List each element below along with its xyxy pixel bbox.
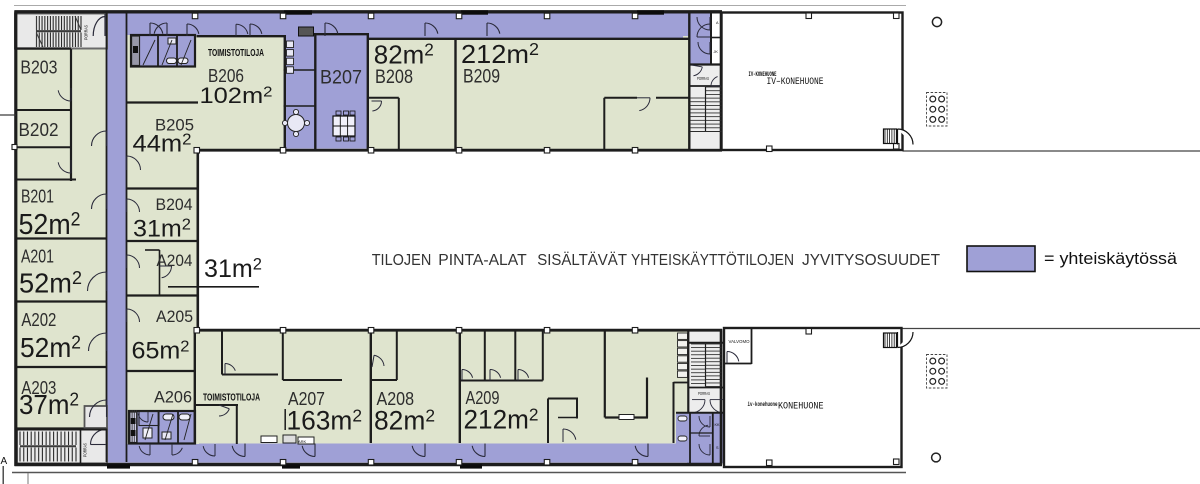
svg-text:A205: A205 (156, 307, 193, 326)
svg-text:PORRAS: PORRAS (84, 25, 90, 40)
svg-text:PINTA-ALAT: PINTA-ALAT (438, 252, 527, 269)
svg-text:PORRAS: PORRAS (698, 391, 710, 396)
svg-text:B203: B203 (20, 58, 57, 78)
svg-text:VALVOMO: VALVOMO (729, 339, 751, 344)
svg-text:KK: KK (715, 423, 721, 427)
svg-text:B202: B202 (19, 120, 59, 140)
svg-text:A: A (1, 456, 8, 467)
svg-text:163m2: 163m2 (287, 406, 363, 436)
svg-text:212m2: 212m2 (464, 405, 539, 435)
svg-text:ARK: ARK (298, 439, 307, 444)
svg-text:SISÄLTÄVÄT: SISÄLTÄVÄT (537, 252, 627, 269)
svg-text:B209: B209 (463, 67, 500, 88)
svg-text:A204: A204 (157, 251, 193, 270)
svg-text:B201: B201 (21, 187, 54, 207)
svg-text:B204: B204 (156, 195, 193, 214)
svg-text:JYVITYSOSUUDET: JYVITYSOSUUDET (802, 252, 941, 269)
svg-text:PORRAS: PORRAS (697, 76, 709, 81)
svg-text:A206: A206 (154, 388, 192, 407)
svg-text:JK: JK (714, 50, 719, 54)
svg-text:TOIMISTOTILOJA: TOIMISTOTILOJA (203, 393, 260, 404)
svg-text:102m2: 102m2 (200, 83, 273, 108)
svg-text:212m2: 212m2 (461, 39, 539, 69)
svg-text:IV–KONEHUONE: IV–KONEHUONE (767, 76, 824, 87)
svg-text:PORRAS: PORRAS (83, 443, 89, 457)
svg-text:= yhteiskäytössä: = yhteiskäytössä (1044, 249, 1178, 268)
svg-text:B207: B207 (320, 67, 362, 89)
svg-text:YHTEISKÄYTTÖTILOJEN: YHTEISKÄYTTÖTILOJEN (631, 251, 794, 269)
svg-text:TOIMISTOTILOJA: TOIMISTOTILOJA (208, 48, 264, 59)
svg-text:TILOJEN: TILOJEN (372, 252, 432, 269)
svg-text:A202: A202 (21, 310, 56, 330)
svg-text:KONEHUONE: KONEHUONE (778, 401, 824, 413)
svg-text:B208: B208 (375, 67, 413, 88)
svg-text:A201: A201 (21, 247, 54, 267)
svg-text:iv-konehuone: iv-konehuone (748, 401, 778, 408)
